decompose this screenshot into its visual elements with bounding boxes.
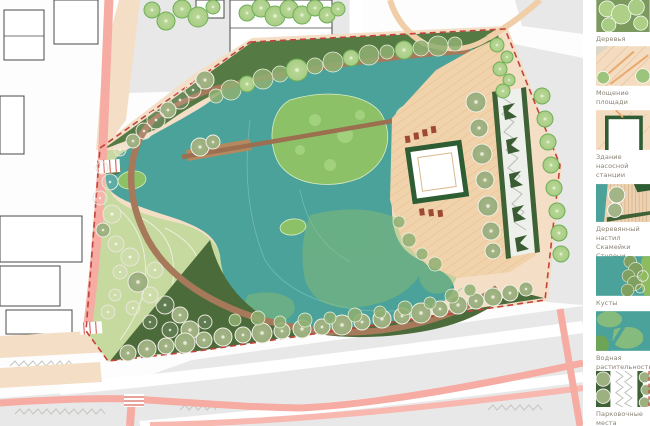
legend-label: Кусты — [596, 299, 650, 308]
legend-label: Здание насосной станции — [596, 153, 650, 180]
masterplan-canvas: Деревья Мощение площади Здание насосной … — [0, 0, 650, 426]
legend-item-trees: Деревья — [596, 0, 650, 44]
legend-swatch-aquatic-icon — [596, 311, 650, 351]
legend-swatch-paving-icon — [596, 46, 650, 86]
legend-label: Парковочные места — [596, 410, 650, 426]
masterplan-drawing — [0, 0, 650, 426]
legend-swatch-trees-icon — [596, 0, 650, 32]
legend: Деревья Мощение площади Здание насосной … — [583, 0, 650, 426]
legend-swatch-parking-icon — [596, 371, 650, 407]
legend-item-bushes: Кусты — [596, 256, 650, 308]
legend-swatch-bushes-icon — [596, 256, 650, 296]
legend-item-pump-station: Здание насосной станции — [596, 110, 650, 180]
legend-item-parking: Парковочные места — [596, 371, 650, 426]
legend-item-aquatic: Водная растительность — [596, 311, 650, 372]
legend-item-wood-deck: Деревянный настил Скамейки Ступени — [596, 184, 650, 261]
legend-swatch-pump-station-icon — [596, 110, 650, 150]
legend-label: Мощение площади — [596, 89, 650, 107]
legend-item-paving: Мощение площади — [596, 46, 650, 107]
legend-swatch-wood-deck-icon — [596, 184, 650, 222]
legend-label: Водная растительность — [596, 354, 650, 372]
legend-label: Деревья — [596, 35, 650, 44]
